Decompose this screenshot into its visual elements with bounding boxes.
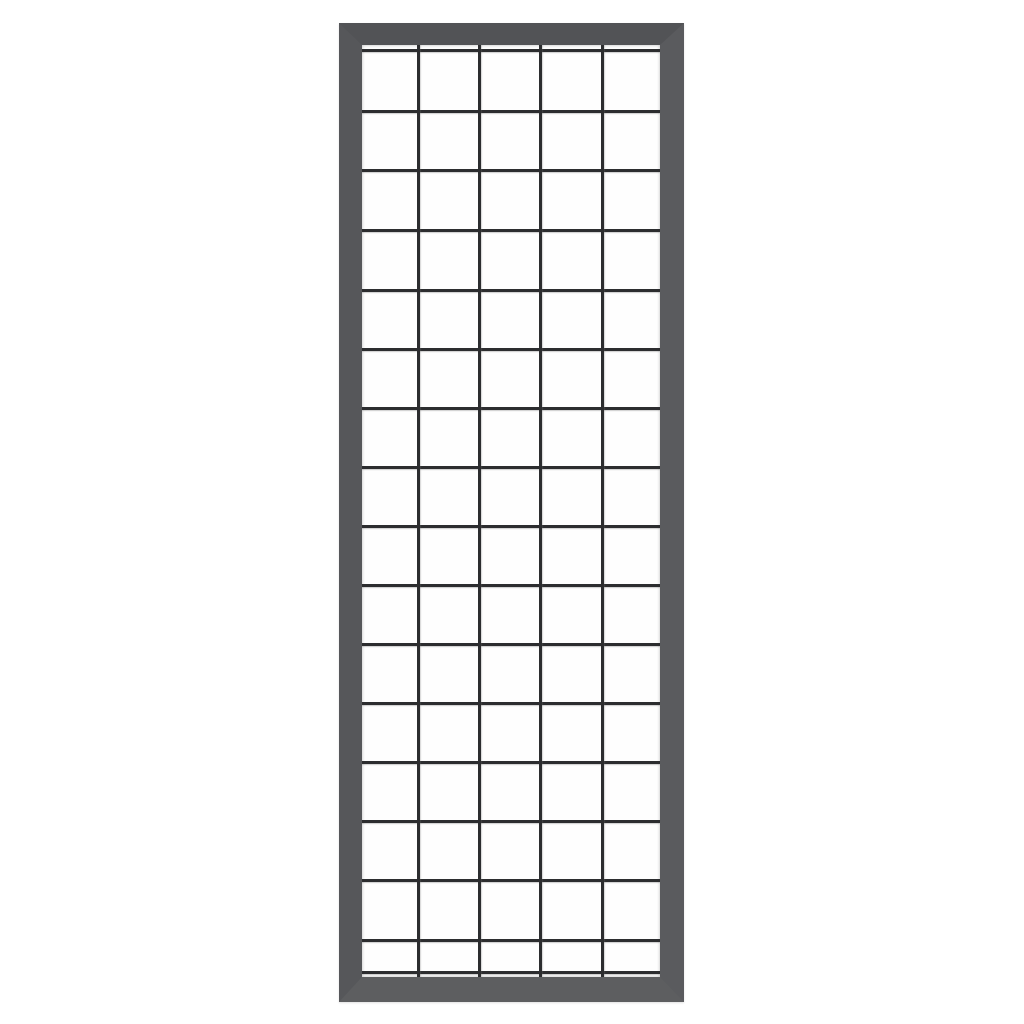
mesh-wire-horizontal (362, 407, 660, 410)
mesh-wire-horizontal (362, 169, 660, 172)
mesh-wire-horizontal (362, 110, 660, 113)
mesh-wire-horizontal (362, 49, 660, 52)
mesh-wire-horizontal (362, 820, 660, 823)
mesh-wire-horizontal (362, 879, 660, 882)
mesh-wire-horizontal (362, 466, 660, 469)
trellis-panel (339, 23, 684, 1002)
mesh-wire-vertical (539, 45, 542, 977)
product-photo-background (0, 0, 1024, 1024)
mesh-wire-vertical (478, 45, 481, 977)
mesh-wire-horizontal (362, 289, 660, 292)
mesh-wire-horizontal (362, 643, 660, 646)
mesh-wire-vertical (417, 45, 420, 977)
mesh-wire-horizontal (362, 939, 660, 942)
mesh-wire-horizontal (362, 971, 660, 974)
mesh-wire-horizontal (362, 702, 660, 705)
mesh-wire-horizontal (362, 761, 660, 764)
mesh-wire-horizontal (362, 348, 660, 351)
mesh-wire-horizontal (362, 525, 660, 528)
mesh-grid (362, 45, 660, 977)
mesh-wire-vertical (601, 45, 604, 977)
mesh-wire-horizontal (362, 229, 660, 232)
mesh-wire-horizontal (362, 584, 660, 587)
